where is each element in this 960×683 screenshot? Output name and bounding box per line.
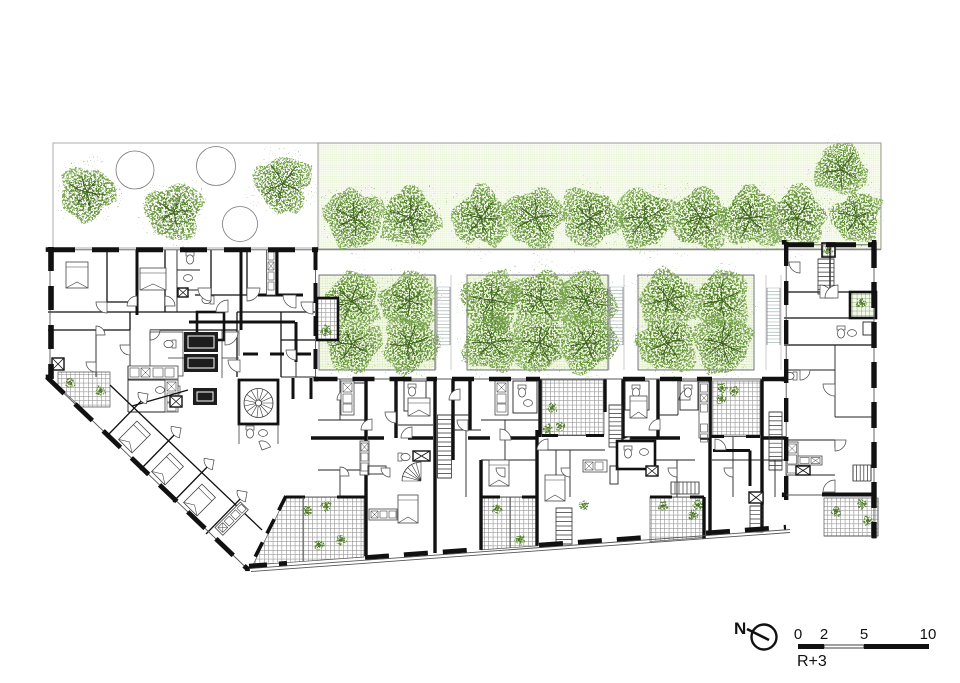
svg-text:10: 10 xyxy=(920,626,937,643)
svg-text:N: N xyxy=(734,619,746,638)
svg-text:0: 0 xyxy=(794,626,802,643)
svg-text:R+3: R+3 xyxy=(797,653,827,670)
svg-text:2: 2 xyxy=(820,626,828,643)
svg-text:5: 5 xyxy=(860,626,868,643)
